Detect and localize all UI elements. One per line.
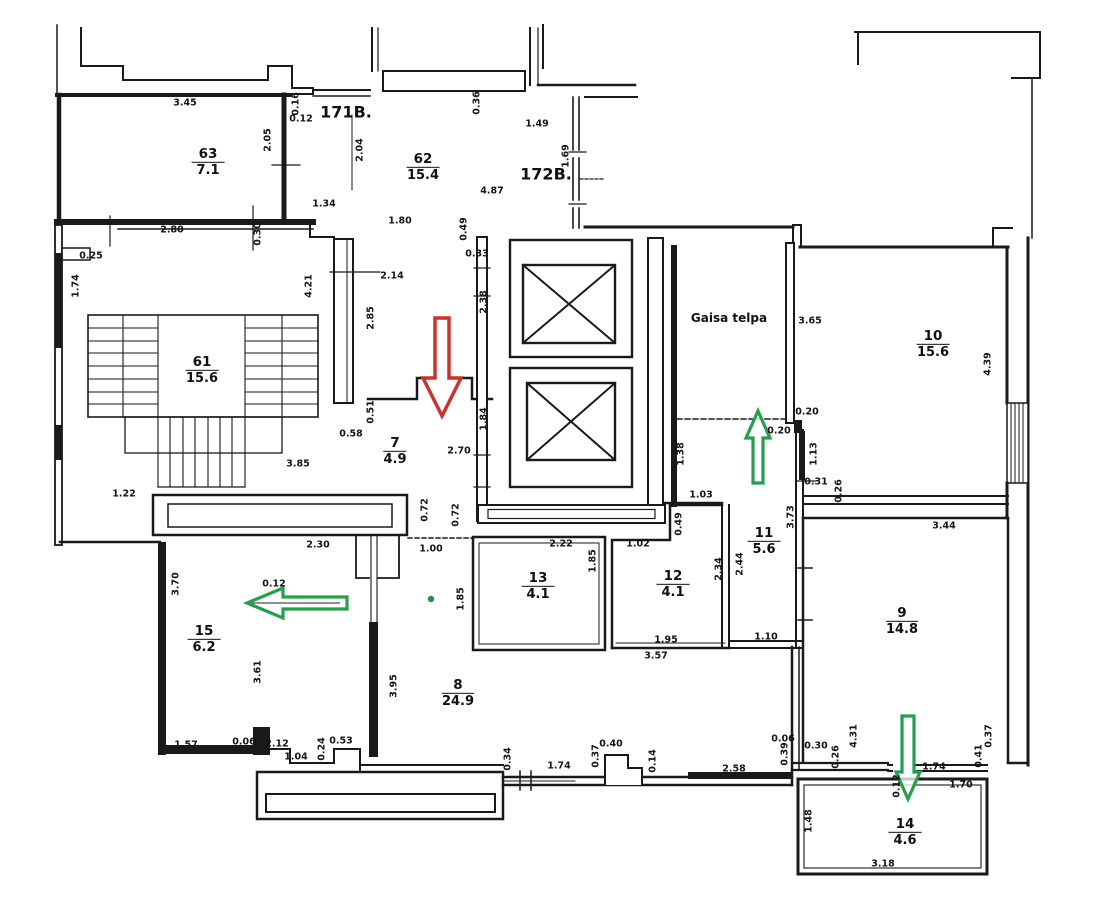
floor-plan-page: 637.16215.46115.674.91015.6115.6134.1124… [0, 0, 1106, 910]
floor-plan-drawing [0, 0, 1106, 910]
green-arrow-down [896, 716, 920, 799]
balcony-top [383, 71, 525, 91]
corridor-wall-bar [153, 495, 407, 535]
stairs [88, 315, 318, 487]
elevator-shaft-bottom [510, 368, 632, 487]
green-arrow-up [746, 411, 770, 483]
chimney [605, 755, 642, 785]
walls-layer [55, 25, 1040, 874]
red-arrow-down [423, 318, 461, 416]
room14-walls [798, 779, 987, 874]
window-left [55, 253, 62, 348]
room13-walls [473, 537, 605, 650]
window-right [1007, 403, 1028, 483]
wall-pier [334, 239, 353, 403]
top-left-wall-stub [81, 28, 313, 94]
room12-walls [612, 505, 722, 648]
partition-room15 [369, 622, 378, 757]
elevator-shaft-top [510, 240, 632, 357]
green-dot-marker [428, 596, 434, 602]
